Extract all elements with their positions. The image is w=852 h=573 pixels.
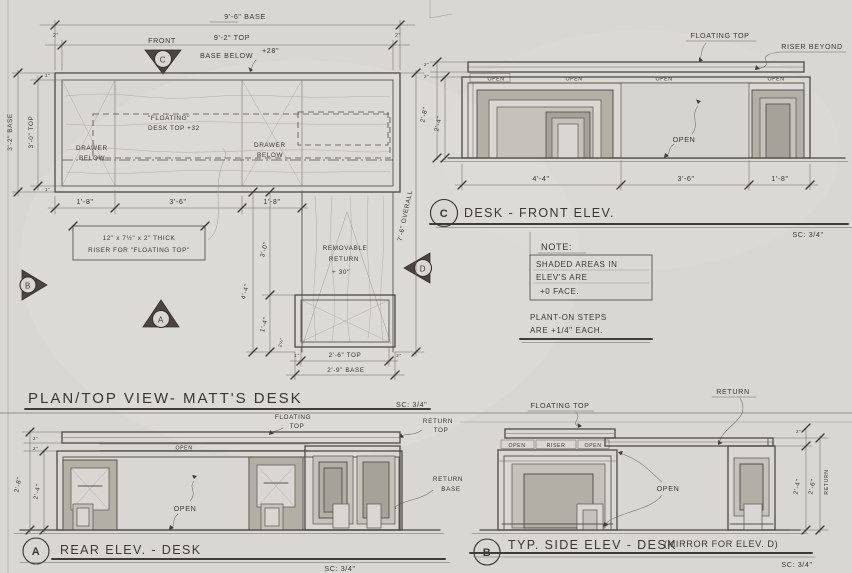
rear-dim-gap: 2" <box>33 446 38 451</box>
side-strip-riser: RISER <box>547 443 566 449</box>
dim-end-right: 2" <box>395 33 401 39</box>
rear-marker-letter: A <box>32 546 41 558</box>
drawer-below-1a: DRAWER <box>76 145 108 152</box>
note-body-2: ELEV'S ARE <box>536 273 588 282</box>
front-title: DESK - FRONT ELEV. <box>464 206 615 220</box>
side-title-suffix: (MIRROR FOR ELEV. D) <box>664 539 778 549</box>
rear-return-top-2: TOP <box>434 427 449 434</box>
rear-title: REAR ELEV. - DESK <box>60 543 201 557</box>
front-marker-letter: C <box>160 56 166 65</box>
side-dim-return-word: RETURN <box>824 469 830 494</box>
dim-top-width: 9'-2" TOP <box>214 33 250 42</box>
rear-return-base-2: BASE <box>441 486 460 493</box>
marker-d-letter: D <box>420 265 426 274</box>
side-open-label: OPEN <box>657 484 680 493</box>
front-dim-bay-1: 4'-4" <box>532 174 549 183</box>
drawing-canvas: 9'-6" BASE 9'-2" TOP 2" 2" FRONT C BASE … <box>0 0 852 573</box>
dim-side-small-top: 1" <box>45 73 50 78</box>
note-foot-2: ARE +1/4" EACH. <box>530 326 603 335</box>
base-below-height: +28" <box>262 46 279 55</box>
side-return-label: RETURN <box>716 387 750 396</box>
dim-bay-2: 3'-6" <box>169 197 186 206</box>
dim-top-depth: 3'-0" TOP <box>28 116 35 149</box>
riser-note-line-2: RISER FOR "FLOATING TOP" <box>88 247 190 254</box>
marker-a-letter: A <box>158 316 164 325</box>
rear-dim-top-thk: 2" <box>33 436 38 441</box>
dim-base-depth: 3'-2" BASE <box>7 113 14 151</box>
riser-note-line-1: 12" x 7½" x 2" THICK <box>103 234 176 242</box>
floating-top-label-1: "FLOATING" <box>148 115 190 122</box>
side-strip-open-2: OPEN <box>584 443 601 449</box>
rear-floating-label-1: FLOATING <box>275 414 311 421</box>
return-label-1: REMOVABLE <box>323 245 368 252</box>
note-foot-1: PLANT-ON STEPS <box>530 313 607 322</box>
front-body <box>440 77 848 162</box>
drawer-below-1b: BELOW <box>79 155 105 162</box>
drawer-below-2b: BELOW <box>257 152 283 159</box>
dim-end-left: 2" <box>53 33 59 39</box>
rear-floating-label-2: TOP <box>290 423 305 430</box>
riser-beyond-label: RISER BEYOND <box>781 42 843 51</box>
front-open-label: OPEN <box>673 135 696 144</box>
dim-bay-3: 1'-8" <box>263 197 280 206</box>
dim-return-small-r: 2" <box>396 353 401 358</box>
rear-return-top-1: RETURN <box>423 418 453 425</box>
rear-return-base-1: RETURN <box>433 476 463 483</box>
base-below-label: BASE BELOW <box>200 51 253 60</box>
rear-scale: SC: 3/4" <box>324 564 355 573</box>
plan-title: PLAN/TOP VIEW- MATT'S DESK <box>28 390 303 407</box>
front-marker-letter: C <box>440 208 449 220</box>
drawing-sheet: 9'-6" BASE 9'-2" TOP 2" 2" FRONT C BASE … <box>0 0 852 573</box>
marker-b-letter: B <box>25 282 31 291</box>
side-scale: SC: 3/4" <box>781 560 812 569</box>
front-dim-bay-2: 3'-6" <box>677 174 694 183</box>
note-body-3: +0 FACE. <box>540 287 579 296</box>
front-dim-gap: 2" <box>424 74 429 79</box>
front-label: FRONT <box>148 36 176 45</box>
dim-return-base-width: 2'-9" BASE <box>327 367 365 374</box>
floating-top-label: FLOATING TOP <box>690 31 749 40</box>
side-strip-open-1: OPEN <box>508 443 525 449</box>
dim-return-top-width: 2'-6" TOP <box>329 352 362 359</box>
front-scale: SC: 3/4" <box>792 230 823 239</box>
note-body-1: SHADED AREAS IN <box>536 260 617 269</box>
front-dim-top-thk: 2" <box>424 62 429 67</box>
rear-open-label: OPEN <box>174 504 197 513</box>
side-floating-top-label: FLOATING TOP <box>530 401 589 410</box>
side-title: TYP. SIDE ELEV - DESK <box>508 538 677 552</box>
note-heading: NOTE: <box>541 242 572 252</box>
dim-base-width: 9'-6" BASE <box>224 12 266 21</box>
plan-scale: SC: 3/4" <box>396 400 427 409</box>
return-label-2: RETURN <box>329 256 359 263</box>
dim-bay-1: 1'-8" <box>76 197 93 206</box>
drawer-below-2a: DRAWER <box>254 142 286 149</box>
dim-side-small-bot: 1" <box>45 187 50 192</box>
front-dim-bay-3: 1'-8" <box>771 174 788 183</box>
floating-top-label-2: DESK TOP +32 <box>148 125 200 132</box>
return-label-3: + 30" <box>332 269 350 276</box>
side-dim-top-thk: 2" <box>796 429 801 434</box>
